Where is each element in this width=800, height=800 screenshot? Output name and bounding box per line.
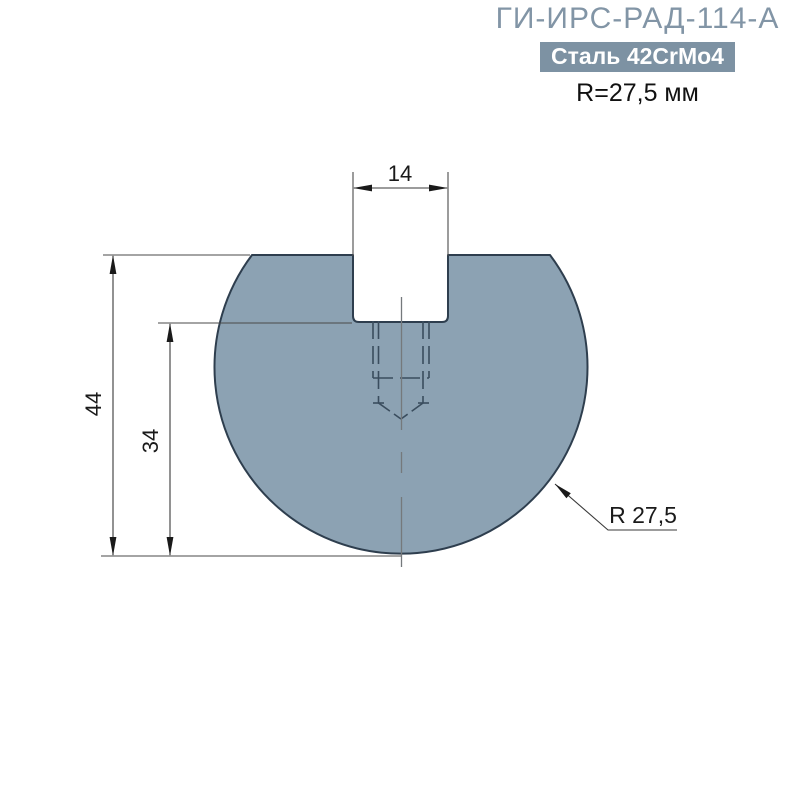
arrowhead-34-top (167, 323, 174, 342)
arrowhead-34-bottom (167, 537, 174, 556)
technical-drawing: 14 44 34 R 27,5 (0, 0, 800, 800)
arrowhead-44-top (110, 255, 117, 274)
radius-leader: R 27,5 (555, 484, 677, 530)
dim-label-14: 14 (388, 161, 412, 186)
arrowhead-14-left (353, 185, 372, 192)
dimension-shoulder-height: 34 (138, 323, 173, 556)
arrowhead-14-right (429, 185, 448, 192)
arrowhead-44-bottom (110, 537, 117, 556)
dim-label-44: 44 (81, 392, 106, 416)
dim-label-34: 34 (138, 429, 163, 453)
dimension-total-height: 44 (81, 255, 116, 556)
dimension-top-width: 14 (353, 161, 448, 191)
radius-callout-label: R 27,5 (609, 502, 677, 528)
